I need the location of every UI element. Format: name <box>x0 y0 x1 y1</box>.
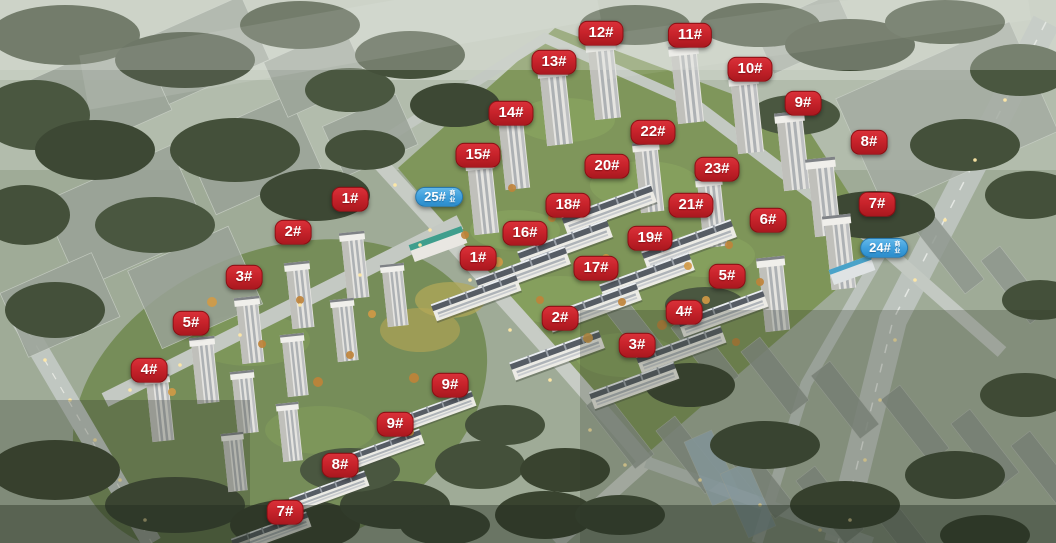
building-number: 3# <box>236 269 253 286</box>
building-label-25: 25#商业 <box>415 187 463 207</box>
building-label-11: 11# <box>668 23 712 48</box>
building-number: 9# <box>442 377 459 394</box>
building-number: 2# <box>552 310 569 327</box>
building-label-8: 8# <box>322 453 359 478</box>
building-label-3: 3# <box>226 265 263 290</box>
building-number: 1# <box>470 250 487 267</box>
building-label-5: 5# <box>709 264 746 289</box>
building-label-19: 19# <box>627 226 672 251</box>
building-label-7: 7# <box>859 192 896 217</box>
building-number: 19# <box>637 230 662 247</box>
building-number: 13# <box>541 54 566 71</box>
building-label-1: 1# <box>332 187 369 212</box>
building-label-9: 9# <box>432 373 469 398</box>
building-number: 2# <box>285 224 302 241</box>
building-number: 11# <box>678 27 702 44</box>
building-label-23: 23# <box>694 157 739 182</box>
building-label-3: 3# <box>619 333 656 358</box>
building-label-20: 20# <box>584 154 629 179</box>
building-label-9: 9# <box>377 412 414 437</box>
building-label-21: 21# <box>668 193 713 218</box>
building-label-15: 15# <box>455 143 500 168</box>
building-label-2: 2# <box>542 306 579 331</box>
building-number: 16# <box>512 225 537 242</box>
building-label-6: 6# <box>750 208 787 233</box>
building-label-7: 7# <box>267 500 304 525</box>
building-number: 15# <box>465 147 490 164</box>
building-label-13: 13# <box>531 50 576 75</box>
building-number: 7# <box>869 196 886 213</box>
building-label-5: 5# <box>173 311 210 336</box>
aerial-site-plan: 12#11#13#10#9#14#22#8#15#20#23#25#商业1#7#… <box>0 0 1056 543</box>
building-label-17: 17# <box>573 256 618 281</box>
building-number: 22# <box>640 124 665 141</box>
building-label-22: 22# <box>630 120 675 145</box>
building-number: 4# <box>676 304 693 321</box>
building-label-layer: 12#11#13#10#9#14#22#8#15#20#23#25#商业1#7#… <box>0 0 1056 543</box>
building-number: 9# <box>387 416 404 433</box>
building-label-14: 14# <box>488 101 533 126</box>
building-number: 20# <box>594 158 619 175</box>
building-number: 9# <box>795 95 812 112</box>
building-number: 6# <box>760 212 777 229</box>
building-number: 25# <box>424 190 446 204</box>
building-number: 1# <box>342 191 359 208</box>
building-label-4: 4# <box>131 358 168 383</box>
building-number: 14# <box>498 105 523 122</box>
building-number: 12# <box>588 25 613 42</box>
building-number: 3# <box>629 337 646 354</box>
building-number: 8# <box>861 134 878 151</box>
building-number: 17# <box>583 260 608 277</box>
building-label-1: 1# <box>460 246 497 271</box>
building-number: 18# <box>555 197 580 214</box>
building-number: 8# <box>332 457 349 474</box>
building-number: 4# <box>141 362 158 379</box>
building-label-2: 2# <box>275 220 312 245</box>
building-label-8: 8# <box>851 130 888 155</box>
building-number: 10# <box>737 61 762 78</box>
building-label-18: 18# <box>545 193 590 218</box>
building-label-12: 12# <box>578 21 623 46</box>
building-number: 23# <box>704 161 729 178</box>
building-number: 7# <box>277 504 294 521</box>
building-type-tag: 商业 <box>448 190 454 204</box>
building-number: 5# <box>183 315 200 332</box>
building-number: 21# <box>678 197 703 214</box>
building-label-10: 10# <box>727 57 772 82</box>
building-type-tag: 商业 <box>893 241 899 255</box>
building-number: 24# <box>869 241 891 255</box>
building-label-16: 16# <box>502 221 547 246</box>
building-label-4: 4# <box>666 300 703 325</box>
building-label-9: 9# <box>785 91 822 116</box>
building-label-24: 24#商业 <box>860 238 908 258</box>
building-number: 5# <box>719 268 736 285</box>
